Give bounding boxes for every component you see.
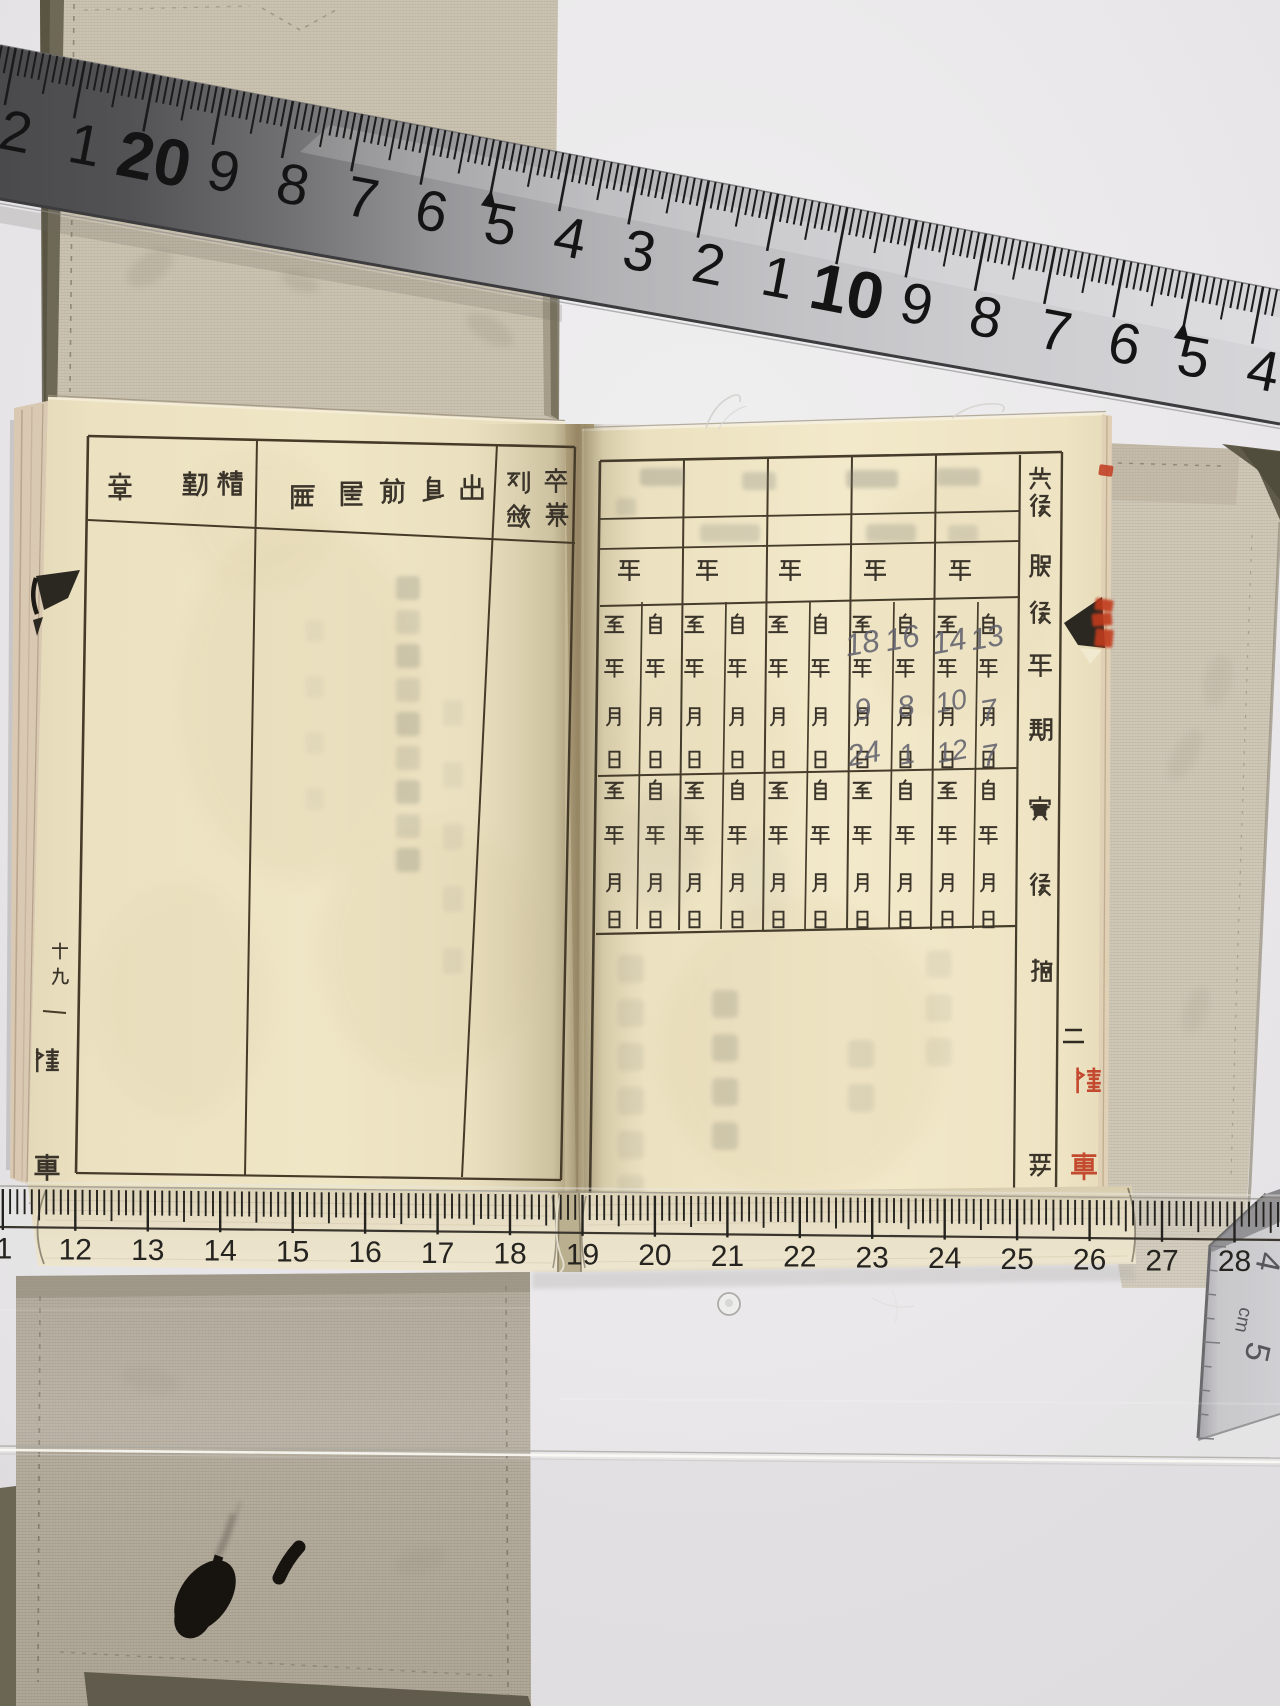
- svg-text:12: 12: [59, 1233, 92, 1266]
- svg-text:17: 17: [421, 1237, 454, 1270]
- svg-text:20: 20: [638, 1239, 671, 1272]
- svg-text:12: 12: [934, 733, 970, 769]
- svg-text:15: 15: [276, 1236, 309, 1269]
- svg-text:13: 13: [131, 1234, 164, 1267]
- svg-text:19: 19: [566, 1238, 599, 1271]
- svg-text:10: 10: [804, 248, 890, 334]
- svg-text:22: 22: [783, 1241, 816, 1274]
- svg-text:1: 1: [0, 1233, 12, 1266]
- svg-text:28: 28: [1218, 1245, 1251, 1278]
- svg-text:14: 14: [204, 1235, 237, 1268]
- svg-text:16: 16: [882, 618, 923, 659]
- svg-text:14: 14: [929, 621, 969, 661]
- svg-text:20: 20: [111, 115, 197, 201]
- svg-text:27: 27: [1145, 1244, 1178, 1277]
- svg-text:21: 21: [711, 1240, 744, 1273]
- svg-text:18: 18: [842, 623, 883, 664]
- svg-text:16: 16: [348, 1236, 381, 1269]
- svg-text:24: 24: [928, 1242, 961, 1275]
- svg-text:23: 23: [856, 1241, 889, 1274]
- svg-text:26: 26: [1073, 1244, 1106, 1277]
- svg-text:18: 18: [493, 1238, 526, 1271]
- svg-text:10: 10: [933, 683, 969, 719]
- svg-text:25: 25: [1000, 1243, 1033, 1276]
- svg-text:13: 13: [968, 619, 1007, 657]
- svg-text:24: 24: [844, 735, 884, 773]
